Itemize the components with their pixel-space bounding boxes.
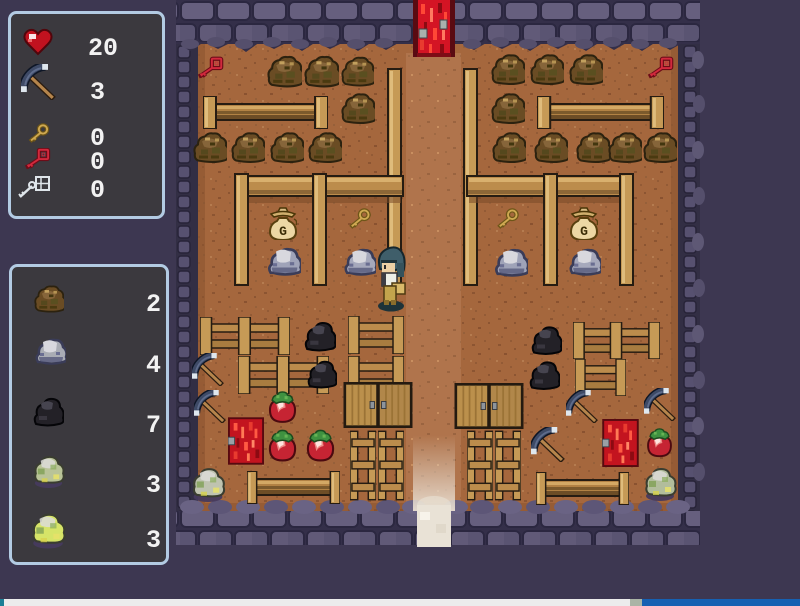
svg-text:0: 0	[90, 176, 105, 205]
svg-text:3: 3	[90, 78, 105, 107]
svg-text:2: 2	[146, 290, 161, 319]
svg-text:0: 0	[90, 148, 105, 177]
svg-text:7: 7	[146, 411, 161, 440]
svg-text:3: 3	[146, 526, 161, 555]
svg-text:3: 3	[146, 471, 161, 500]
svg-text:4: 4	[146, 351, 161, 380]
svg-text:20: 20	[88, 34, 118, 63]
